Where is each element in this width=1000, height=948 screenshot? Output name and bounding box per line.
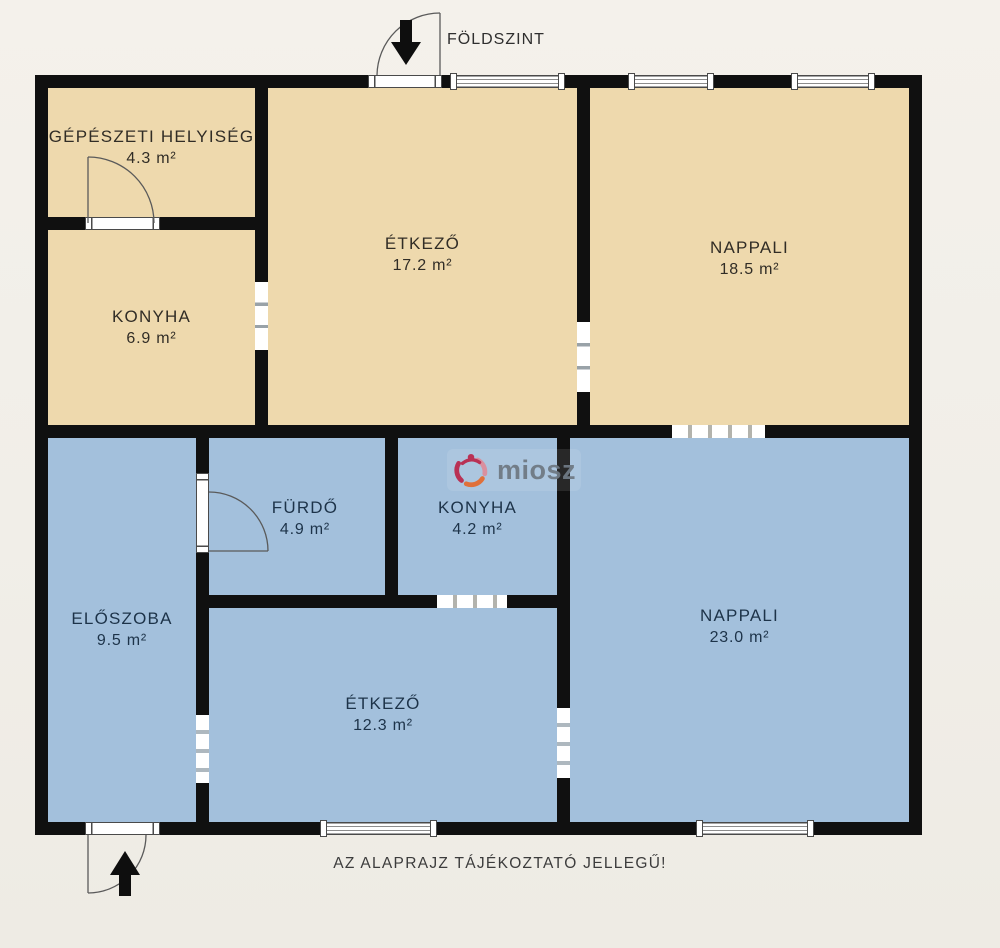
- door-furdo: [196, 473, 209, 553]
- wall-outer-left: [35, 75, 48, 835]
- room-name: GÉPÉSZETI HELYISÉG: [48, 126, 255, 147]
- room-label-etkezo-upper: ÉTKEZŐ 17.2 m²: [268, 233, 577, 276]
- room-name: ELŐSZOBA: [48, 608, 196, 629]
- floor-plan-canvas: FÖLDSZINT AZ ALAPRAJZ TÁJÉKOZTATÓ JELLEG…: [0, 0, 1000, 948]
- opening-etkezo-nappali-lower: [557, 708, 570, 778]
- wall-floor-divider: [48, 425, 909, 438]
- room-name: NAPPALI: [590, 237, 909, 258]
- door-arc-top-entrance: [377, 13, 440, 75]
- watermark-miosz: miosz: [447, 449, 581, 491]
- room-area: 18.5 m²: [590, 259, 909, 280]
- window-bottom-nappali: [698, 822, 812, 835]
- opening-konyha-etkezo-lower: [437, 595, 507, 608]
- entrance-door-top: [368, 75, 442, 88]
- window-top-nappali-2: [793, 75, 873, 88]
- room-area: 17.2 m²: [268, 255, 577, 276]
- pass-through-etkezo-nappali: [577, 322, 590, 392]
- watermark-brand-text: miosz: [497, 455, 576, 486]
- room-label-etkezo-lower: ÉTKEZŐ 12.3 m²: [209, 693, 557, 736]
- room-name: ÉTKEZŐ: [268, 233, 577, 254]
- room-name: KONYHA: [398, 497, 557, 518]
- room-label-nappali-upper: NAPPALI 18.5 m²: [590, 237, 909, 280]
- room-area: 23.0 m²: [570, 627, 909, 648]
- floor-label: FÖLDSZINT: [447, 31, 545, 49]
- wall-konyha-etkezo: [255, 88, 268, 425]
- pass-through-konyha-etkezo: [255, 282, 268, 350]
- room-label-furdo: FÜRDŐ 4.9 m²: [225, 497, 385, 540]
- room-name: KONYHA: [48, 306, 255, 327]
- room-area: 4.2 m²: [398, 519, 557, 540]
- entrance-arrow-down-icon: [391, 20, 421, 65]
- window-bottom-etkezo: [322, 822, 435, 835]
- room-label-konyha-lower: KONYHA 4.2 m²: [398, 497, 557, 540]
- room-area: 4.3 m²: [48, 148, 255, 169]
- opening-divider-nappali: [672, 425, 765, 438]
- wall-furdo-konyha: [385, 438, 398, 608]
- room-label-gepeszeti-helyiseg: GÉPÉSZETI HELYISÉG 4.3 m²: [48, 126, 255, 169]
- room-label-nappali-lower: NAPPALI 23.0 m²: [570, 605, 909, 648]
- room-area: 12.3 m²: [209, 715, 557, 736]
- room-area: 4.9 m²: [225, 519, 385, 540]
- room-area: 6.9 m²: [48, 328, 255, 349]
- opening-eloszoba-etkezo: [196, 715, 209, 783]
- room-area: 9.5 m²: [48, 630, 196, 651]
- miosz-logo-icon: [452, 451, 490, 489]
- door-gepeszeti: [85, 217, 160, 230]
- room-label-eloszoba: ELŐSZOBA 9.5 m²: [48, 608, 196, 651]
- room-name: ÉTKEZŐ: [209, 693, 557, 714]
- entrance-door-bottom: [85, 822, 160, 835]
- room-name: NAPPALI: [570, 605, 909, 626]
- window-top-etkezo: [452, 75, 563, 88]
- wall-furdo-konyha-bottom: [196, 595, 570, 608]
- room-label-konyha-upper: KONYHA 6.9 m²: [48, 306, 255, 349]
- window-top-nappali-1: [630, 75, 712, 88]
- wall-outer-right: [909, 75, 922, 835]
- disclaimer-text: AZ ALAPRAJZ TÁJÉKOZTATÓ JELLEGŰ!: [0, 855, 1000, 873]
- room-name: FÜRDŐ: [225, 497, 385, 518]
